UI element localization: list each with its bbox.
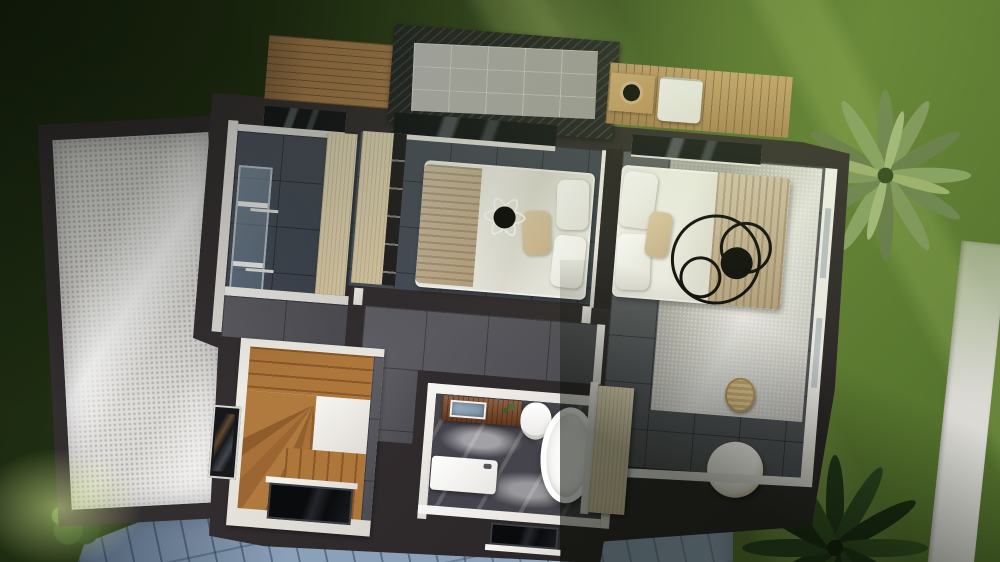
bed-accent-pillow <box>522 211 551 256</box>
deck-side-table <box>609 73 656 114</box>
stair-landing <box>312 396 370 454</box>
gravel-path <box>927 241 1000 562</box>
house-upper-floor <box>167 88 863 562</box>
flower-wire-ceiling-lamp-icon <box>482 195 527 240</box>
deck-seat-cushion <box>657 76 703 123</box>
bedroom1-door-jamb <box>353 288 363 306</box>
bench-faucet-icon <box>483 464 491 470</box>
stairwell-window <box>208 405 242 480</box>
bed-throw-blanket <box>415 164 482 287</box>
desk-trestle-leg <box>233 261 263 268</box>
bed-pillow <box>549 234 587 289</box>
fire-bowl-icon <box>622 84 640 102</box>
floorplan-render-scene <box>0 0 1000 562</box>
vanity-sink <box>449 400 486 420</box>
stairwell-glazing <box>267 482 354 525</box>
bed-pillow <box>556 179 589 230</box>
vanity-plant-icon <box>508 403 516 411</box>
wood-deck-left <box>264 35 405 110</box>
roof-terrace-tiles <box>411 43 598 119</box>
desk-trestle-leg <box>238 201 268 208</box>
window-reflection <box>212 413 235 472</box>
bedroom1-door-jamb <box>581 306 591 324</box>
shower-bench <box>430 455 499 494</box>
wood-deck-right <box>605 62 792 137</box>
